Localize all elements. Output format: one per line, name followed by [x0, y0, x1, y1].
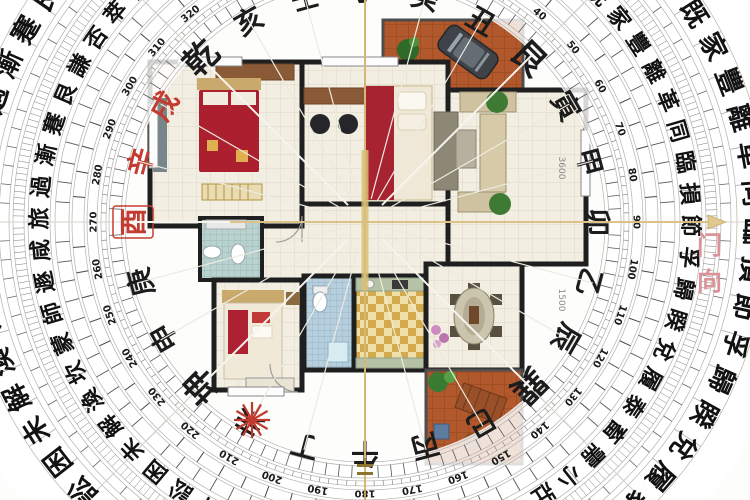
center-gold-band [362, 150, 369, 290]
pillow [231, 92, 256, 105]
flowers [439, 333, 449, 343]
svg-text:癸: 癸 [406, 0, 443, 18]
sink [203, 246, 221, 258]
pillow [398, 92, 426, 110]
svg-text:損: 損 [675, 182, 702, 207]
svg-text:旅: 旅 [27, 207, 53, 229]
bed-c-headboard [222, 290, 284, 303]
svg-text:1500: 1500 [556, 289, 566, 312]
door-direction-label: 门向 [697, 226, 750, 298]
window [322, 57, 398, 66]
fengshui-compass-floorplan: 0102030405060708090100110120130140150160… [0, 0, 750, 500]
bed-b-quilt [366, 86, 394, 200]
quilt-pattern [207, 140, 218, 151]
stove [392, 280, 408, 289]
svg-text:咸: 咸 [28, 238, 55, 262]
kitchen-cabinet [356, 358, 424, 368]
svg-text:臨: 臨 [670, 149, 699, 175]
plant-living-2 [489, 193, 511, 215]
table-runner [469, 306, 479, 324]
svg-text:270: 270 [89, 212, 100, 233]
svg-text:同: 同 [737, 179, 750, 208]
quilt-pattern [236, 150, 248, 162]
shower [328, 342, 348, 362]
svg-text:遯: 遯 [31, 269, 60, 295]
svg-text:3600: 3600 [556, 157, 566, 180]
toilet [231, 244, 245, 264]
flowers [431, 325, 441, 335]
coffee-table [456, 130, 476, 168]
bed-c-throw [228, 310, 248, 354]
plant-living-1 [486, 91, 508, 113]
svg-text:過: 過 [28, 173, 56, 199]
window [228, 387, 284, 396]
svg-text:壬: 壬 [287, 0, 323, 18]
pillow [398, 114, 426, 130]
pillow [203, 92, 228, 105]
pillow-red [252, 312, 270, 323]
shelf-b [304, 88, 366, 104]
sofa-left [434, 112, 458, 190]
